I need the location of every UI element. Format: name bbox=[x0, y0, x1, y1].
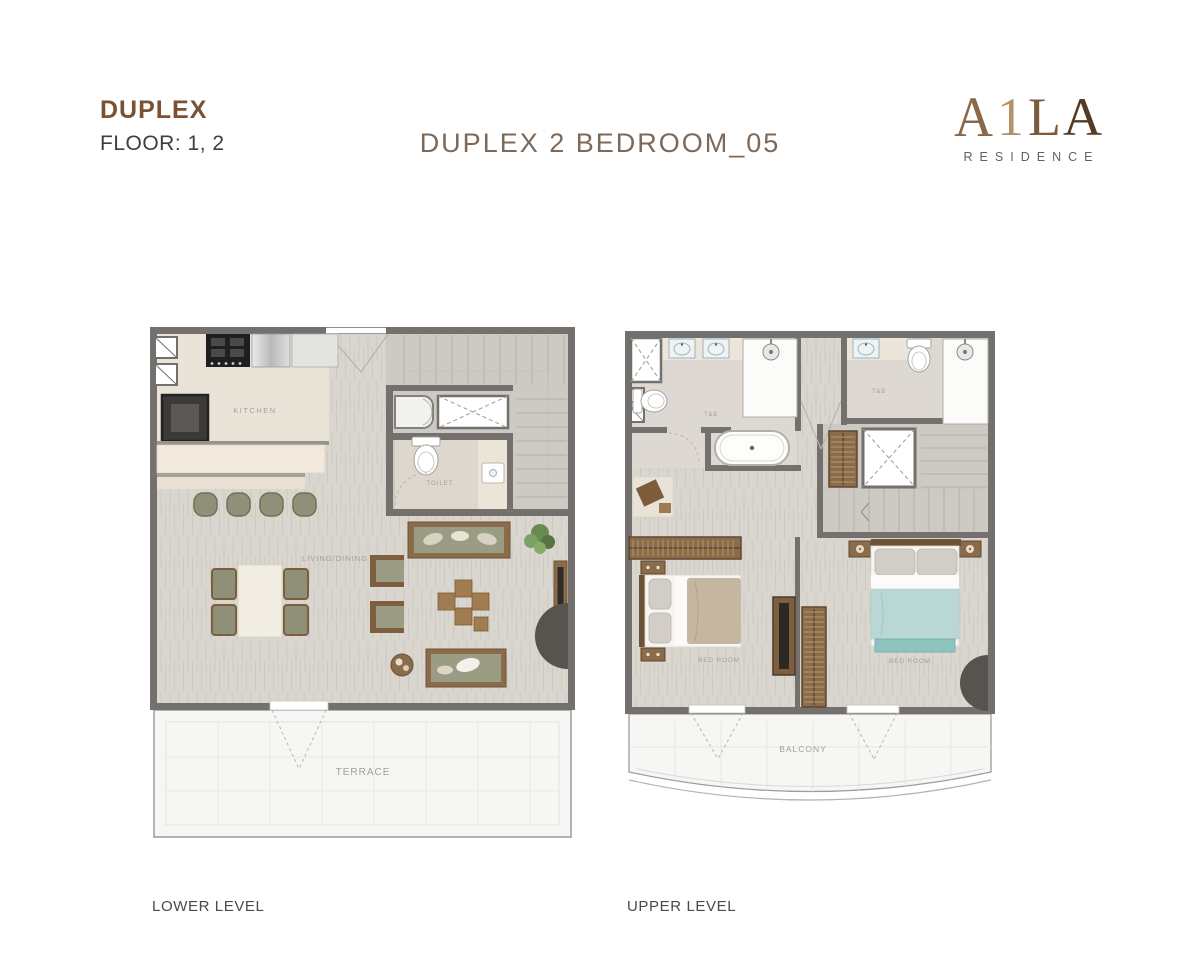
lower-level-floorplan: TERRACE bbox=[150, 327, 575, 840]
toilet-left bbox=[633, 389, 667, 413]
toilet-sink bbox=[482, 463, 504, 483]
reading-chair bbox=[633, 477, 673, 517]
logo-letter-4: A bbox=[1063, 90, 1102, 144]
entrance-opening bbox=[326, 328, 386, 334]
logo-letter-1: A bbox=[954, 89, 993, 146]
armchair-2 bbox=[370, 601, 404, 633]
balcony-label: BALCONY bbox=[779, 744, 827, 754]
terrace-label: TERRACE bbox=[336, 767, 391, 778]
bath-right-label: T&B bbox=[872, 389, 886, 395]
bath-left-label: T&B bbox=[704, 412, 718, 418]
terrace-door-opening bbox=[270, 701, 328, 710]
upper-shaft-box bbox=[863, 429, 915, 487]
walkin-shower-left bbox=[743, 339, 797, 417]
logo-letter-2: 1 bbox=[997, 90, 1024, 144]
bed-left bbox=[639, 575, 741, 647]
bedroom-left-label: BED ROOM bbox=[698, 657, 740, 664]
sofa-top bbox=[408, 522, 510, 558]
kitchen-counter bbox=[157, 441, 329, 489]
logo-subtitle: RESIDENCE bbox=[928, 150, 1128, 164]
wardrobe-bedroom-right bbox=[802, 607, 826, 707]
sink-right bbox=[853, 339, 879, 358]
upper-level-floorplan: BALCONY bbox=[625, 331, 995, 821]
toilet-fixture bbox=[412, 437, 440, 475]
dining-table bbox=[238, 565, 282, 637]
armchair-1 bbox=[370, 555, 404, 587]
round-side-table bbox=[391, 654, 413, 676]
shaft-box bbox=[438, 396, 508, 428]
logo-letter-3: L bbox=[1028, 90, 1061, 144]
unit-type-heading: DUPLEX bbox=[100, 96, 225, 125]
brand-logo: A 1 L A RESIDENCE bbox=[928, 90, 1128, 164]
floorplan-page: DUPLEX FLOOR: 1, 2 DUPLEX 2 BEDROOM_05 A… bbox=[0, 0, 1200, 960]
terrace-area: TERRACE bbox=[154, 710, 571, 837]
kitchen-cabinet bbox=[292, 334, 338, 367]
balcony-area: BALCONY bbox=[629, 714, 991, 801]
bathtub bbox=[715, 431, 789, 465]
refrigerator bbox=[252, 334, 290, 367]
stove bbox=[206, 334, 250, 367]
lower-level-plan: TERRACE bbox=[150, 327, 575, 845]
upper-level-plan: BALCONY bbox=[625, 331, 995, 826]
balcony-door-right bbox=[847, 705, 899, 713]
walkin-shower-right bbox=[943, 339, 988, 424]
bed-right bbox=[871, 539, 961, 652]
living-dining-label: LIVING/DINING bbox=[302, 554, 368, 563]
lower-level-caption: LOWER LEVEL bbox=[152, 898, 264, 915]
toilet-label: TOILET bbox=[427, 481, 454, 487]
balcony-door-left bbox=[689, 705, 745, 713]
kitchen-label: KITCHEN bbox=[233, 406, 276, 415]
bath-left-shaft bbox=[631, 338, 661, 382]
logo-wordmark: A 1 L A bbox=[928, 90, 1128, 144]
sofa-bottom bbox=[426, 649, 506, 687]
shower-stall bbox=[395, 396, 433, 428]
toilet-right bbox=[907, 339, 931, 372]
bedroom-right-label: BED ROOM bbox=[889, 658, 931, 665]
kitchen-island-block bbox=[162, 395, 208, 441]
upper-level-caption: UPPER LEVEL bbox=[627, 898, 736, 915]
wardrobe-stairs bbox=[829, 431, 857, 487]
wardrobe-bedroom-left bbox=[629, 537, 741, 559]
closet-door-panel bbox=[773, 597, 795, 675]
